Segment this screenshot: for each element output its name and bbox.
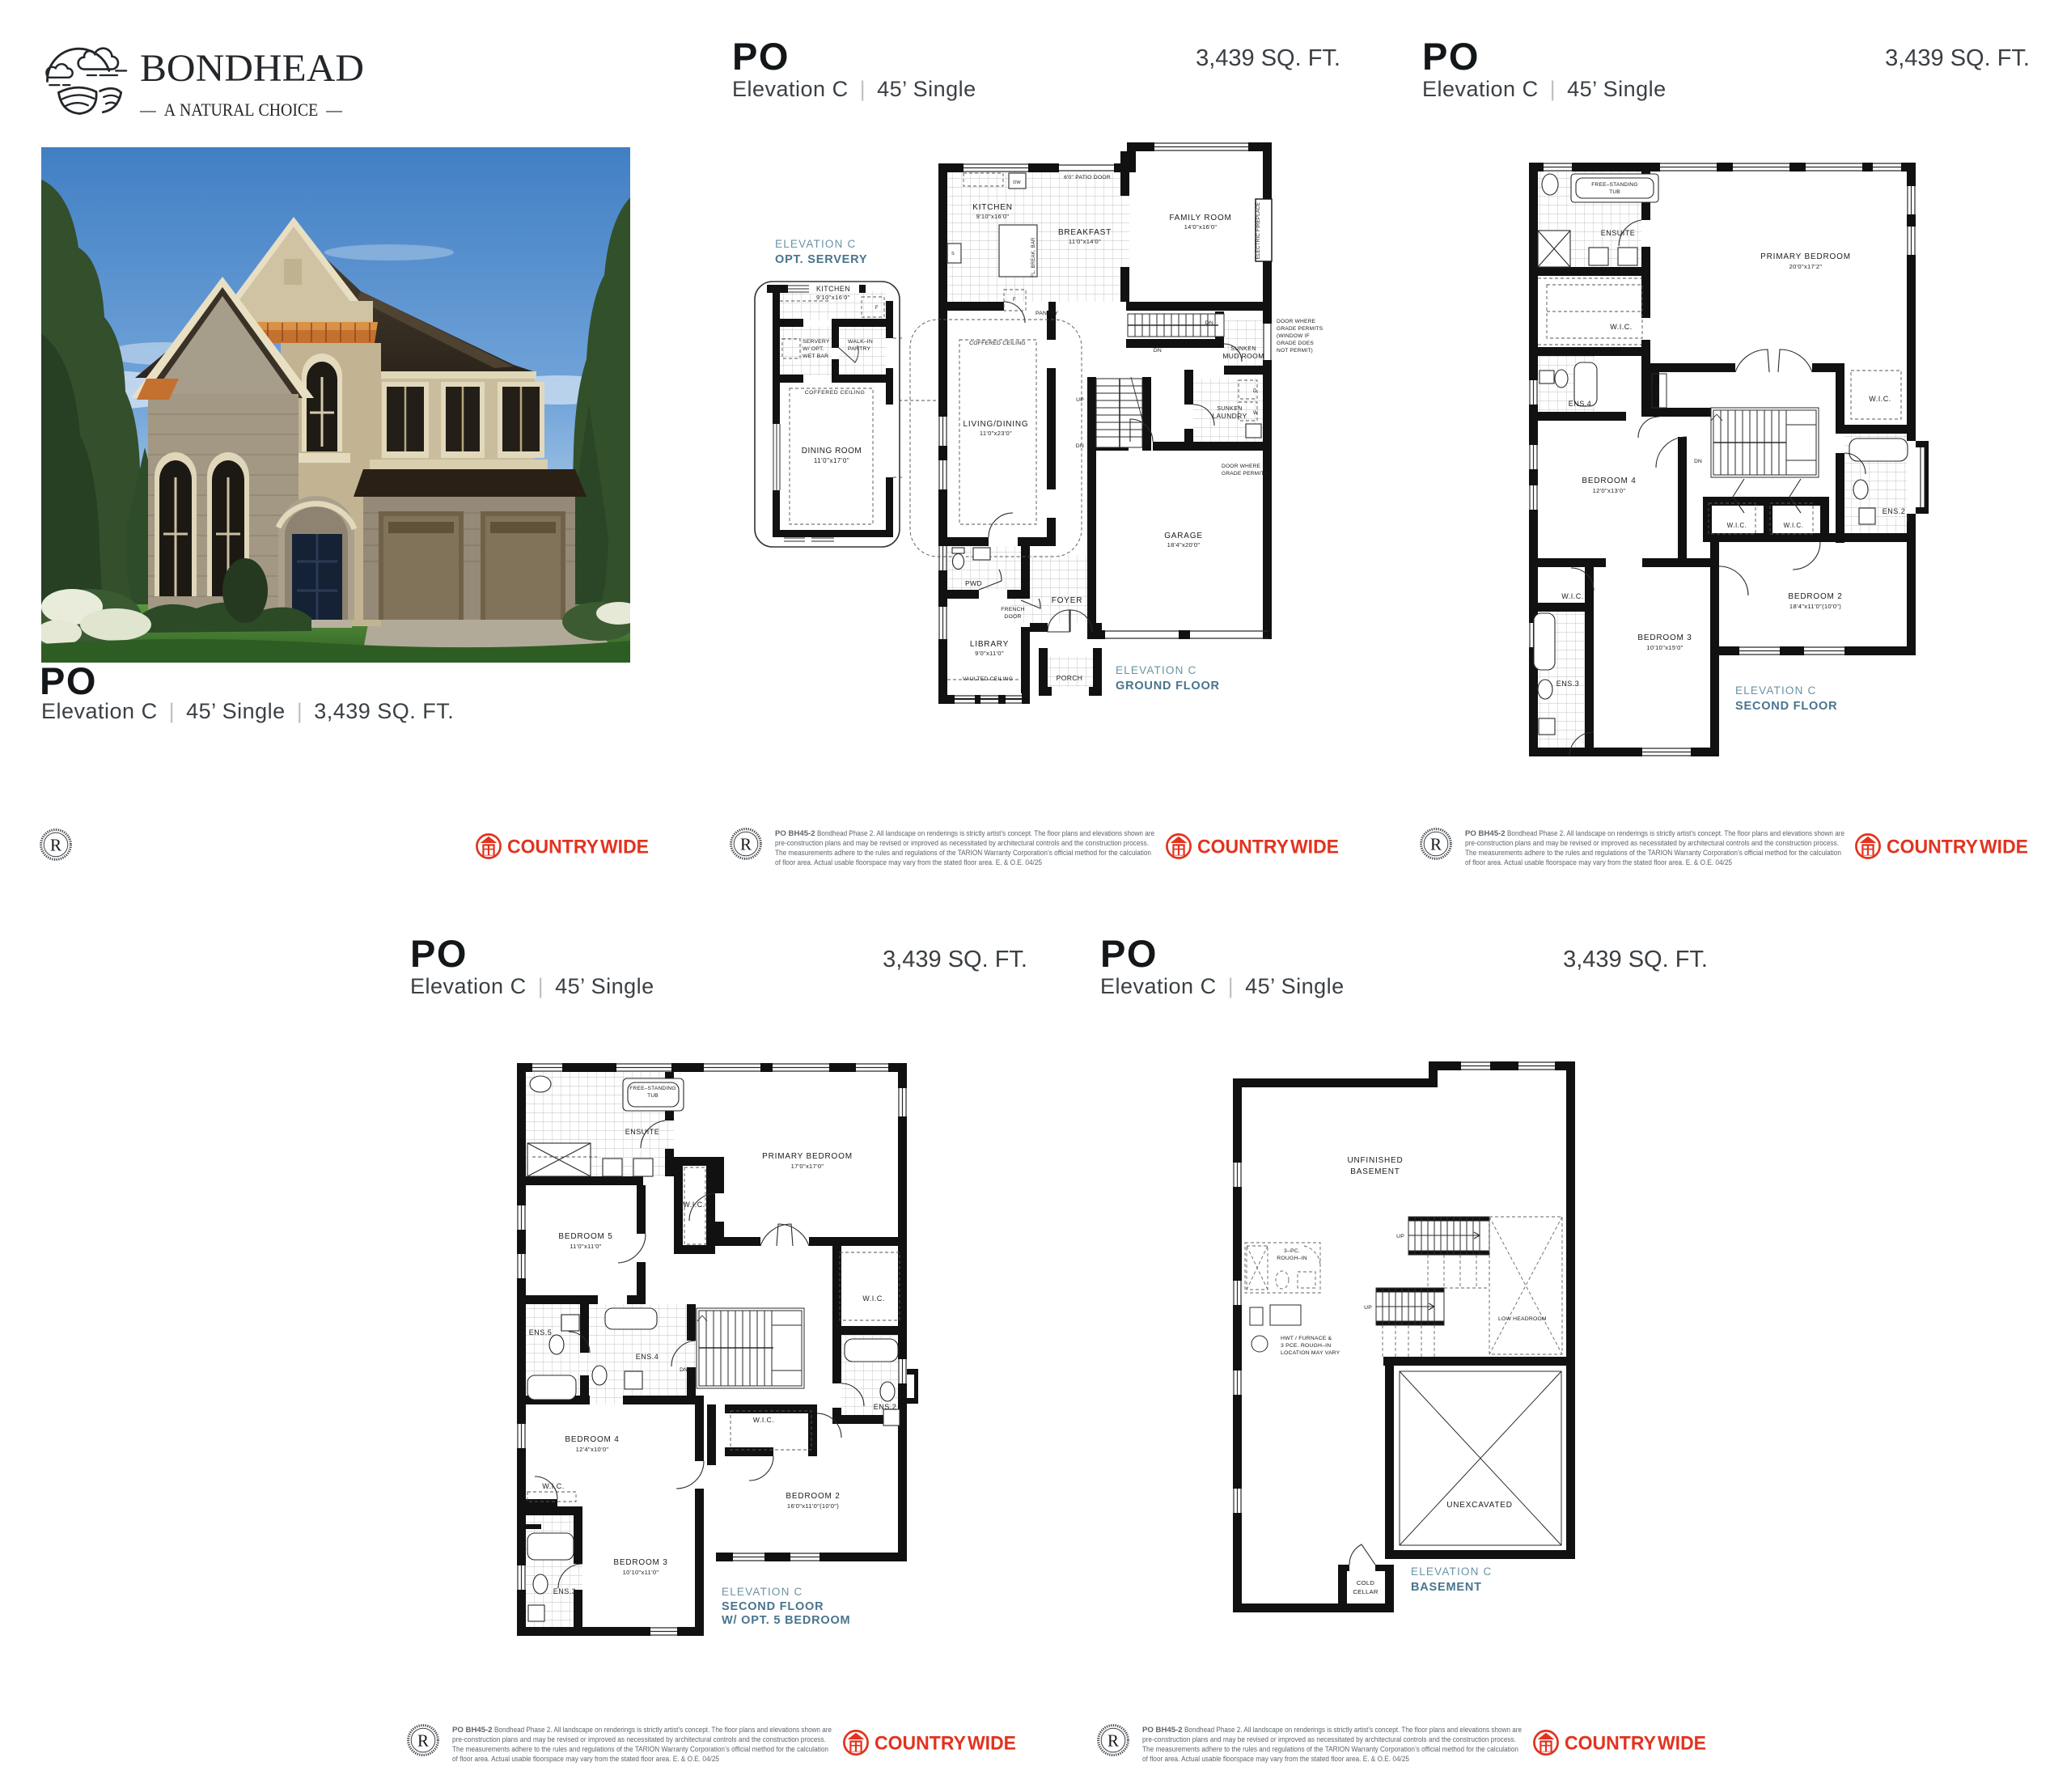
svg-text:GROUND FLOOR: GROUND FLOOR bbox=[1116, 680, 1220, 693]
svg-text:WIDE: WIDE bbox=[600, 837, 649, 858]
svg-text:10'10"x15'0": 10'10"x15'0" bbox=[1646, 644, 1683, 651]
svg-text:SUNKEN: SUNKEN bbox=[1217, 406, 1243, 412]
svg-text:GRADE PERMITS: GRADE PERMITS bbox=[1277, 326, 1323, 332]
svg-text:BEDROOM 5: BEDROOM 5 bbox=[558, 1232, 612, 1241]
svg-text:S: S bbox=[951, 252, 955, 256]
svg-text:9'10"x16'0": 9'10"x16'0" bbox=[816, 294, 850, 301]
svg-text:LIVING/DINING: LIVING/DINING bbox=[964, 420, 1029, 429]
svg-text:WIDE: WIDE bbox=[1658, 1733, 1706, 1755]
svg-text:TUB: TUB bbox=[1609, 189, 1620, 195]
svg-text:ELEVATION C: ELEVATION C bbox=[1411, 1565, 1492, 1578]
svg-text:W.I.C.: W.I.C. bbox=[1869, 395, 1891, 403]
svg-text:PRIMARY BEDROOM: PRIMARY BEDROOM bbox=[762, 1152, 853, 1161]
svg-text:ENS.3: ENS.3 bbox=[553, 1587, 577, 1595]
svg-text:PANTRY: PANTRY bbox=[848, 346, 870, 352]
svg-text:of floor area. Actual usable f: of floor area. Actual usable floorspace … bbox=[1465, 858, 1732, 867]
svg-text:D: D bbox=[1253, 389, 1257, 394]
svg-text:SERVERY: SERVERY bbox=[803, 339, 830, 345]
svg-text:DINING ROOM: DINING ROOM bbox=[802, 447, 862, 455]
svg-text:HWT / FURNACE &: HWT / FURNACE & bbox=[1281, 1336, 1332, 1341]
svg-text:FAMILY ROOM: FAMILY ROOM bbox=[1169, 214, 1231, 222]
svg-text:LOW HEADROOM: LOW HEADROOM bbox=[1498, 1316, 1547, 1322]
svg-text:W.I.C.: W.I.C. bbox=[1784, 522, 1804, 529]
svg-text:W.I.C.: W.I.C. bbox=[1561, 592, 1584, 600]
svg-text:W.I.C.: W.I.C. bbox=[683, 1201, 705, 1209]
svg-text:12'0"x13'0": 12'0"x13'0" bbox=[1593, 487, 1626, 494]
svg-text:ENS.2: ENS.2 bbox=[874, 1403, 897, 1411]
svg-text:20'0"x17'2": 20'0"x17'2" bbox=[1789, 263, 1823, 270]
svg-text:ELEVATION C: ELEVATION C bbox=[722, 1586, 803, 1598]
svg-text:11'0"x14'0": 11'0"x14'0" bbox=[1069, 238, 1101, 245]
svg-text:3–PC.: 3–PC. bbox=[1284, 1248, 1300, 1254]
svg-text:BEDROOM 2: BEDROOM 2 bbox=[786, 1492, 840, 1501]
svg-text:PO BH45-2: PO BH45-2 bbox=[1142, 1726, 1183, 1735]
svg-text:(WINDOW IF: (WINDOW IF bbox=[1277, 333, 1310, 339]
svg-text:BEDROOM 3: BEDROOM 3 bbox=[1637, 633, 1692, 642]
svg-text:WALK–IN: WALK–IN bbox=[848, 339, 873, 345]
svg-text:FL. BREAK. BAR: FL. BREAK. BAR bbox=[1031, 237, 1036, 277]
svg-text:3 PCE. ROUGH–IN: 3 PCE. ROUGH–IN bbox=[1281, 1343, 1331, 1349]
svg-text:BEDROOM 4: BEDROOM 4 bbox=[1582, 477, 1636, 485]
svg-text:COUNTRY: COUNTRY bbox=[1565, 1733, 1656, 1755]
svg-text:PWD: PWD bbox=[965, 579, 982, 587]
svg-text:COUNTRY: COUNTRY bbox=[507, 837, 599, 858]
svg-text:R: R bbox=[740, 835, 752, 854]
svg-text:ENSUITE: ENSUITE bbox=[1601, 229, 1636, 237]
svg-text:ELEVATION C: ELEVATION C bbox=[775, 238, 856, 250]
svg-text:W: W bbox=[1253, 411, 1258, 416]
svg-text:The measurements adhere to the: The measurements adhere to the rules and… bbox=[452, 1745, 828, 1754]
svg-text:DN: DN bbox=[1694, 459, 1702, 464]
svg-text:DN: DN bbox=[1076, 443, 1084, 449]
svg-text:DN: DN bbox=[1205, 320, 1213, 326]
svg-text:16'0"x11'0"(10'0"): 16'0"x11'0"(10'0") bbox=[787, 1502, 839, 1510]
svg-text:TUB: TUB bbox=[647, 1093, 659, 1099]
svg-text:FRENCH: FRENCH bbox=[1001, 607, 1025, 612]
svg-text:KITCHEN: KITCHEN bbox=[972, 203, 1013, 212]
svg-text:WET BAR: WET BAR bbox=[803, 354, 828, 359]
svg-text:PORCH: PORCH bbox=[1057, 674, 1083, 682]
svg-text:BONDHEAD: BONDHEAD bbox=[140, 47, 364, 90]
svg-text:W.I.C.: W.I.C. bbox=[1727, 522, 1747, 529]
svg-text:Bondhead Phase 2. All landscap: Bondhead Phase 2. All landscape on rende… bbox=[1184, 1726, 1522, 1735]
svg-text:SECOND FLOOR: SECOND FLOOR bbox=[1735, 700, 1837, 713]
svg-text:LOCATION MAY VARY: LOCATION MAY VARY bbox=[1281, 1350, 1340, 1356]
svg-text:pre-construction plans and may: pre-construction plans and may be revise… bbox=[452, 1735, 826, 1744]
svg-text:COFFERED CEILING: COFFERED CEILING bbox=[969, 341, 1026, 346]
svg-text:R: R bbox=[1107, 1731, 1119, 1751]
svg-text:LIBRARY: LIBRARY bbox=[970, 640, 1009, 649]
svg-text:GARAGE: GARAGE bbox=[1164, 532, 1203, 540]
svg-text:Bondhead Phase 2. All landscap: Bondhead Phase 2. All landscape on rende… bbox=[817, 829, 1154, 838]
svg-text:R: R bbox=[417, 1731, 429, 1751]
svg-text:ENS.4: ENS.4 bbox=[1569, 400, 1592, 408]
svg-text:The measurements adhere to the: The measurements adhere to the rules and… bbox=[775, 849, 1151, 858]
svg-text:VAULTED CEILING: VAULTED CEILING bbox=[963, 676, 1013, 682]
svg-text:COLD: COLD bbox=[1357, 1579, 1375, 1587]
svg-text:LINEN: LINEN bbox=[1656, 383, 1661, 398]
svg-text:PO BH45-2: PO BH45-2 bbox=[775, 829, 815, 838]
svg-text:14'0"x16'0": 14'0"x16'0" bbox=[1184, 223, 1218, 231]
svg-text:12'4"x10'0": 12'4"x10'0" bbox=[576, 1446, 609, 1453]
svg-text:10'10"x11'0": 10'10"x11'0" bbox=[623, 1569, 659, 1576]
svg-text:PO BH45-2: PO BH45-2 bbox=[1465, 829, 1506, 838]
svg-text:LINEN: LINEN bbox=[709, 1429, 714, 1443]
svg-text:UP: UP bbox=[1396, 1234, 1404, 1239]
svg-text:OPT. SERVERY: OPT. SERVERY bbox=[775, 253, 867, 266]
svg-text:17'0"x17'0": 17'0"x17'0" bbox=[791, 1163, 824, 1170]
svg-text:MUD ROOM: MUD ROOM bbox=[1222, 352, 1264, 360]
svg-text:ROUGH–IN: ROUGH–IN bbox=[1277, 1256, 1307, 1261]
svg-text:W/ OPT.: W/ OPT. bbox=[803, 346, 824, 352]
svg-text:GRADE PERMITS: GRADE PERMITS bbox=[1222, 471, 1268, 477]
svg-text:18'4"x20'0": 18'4"x20'0" bbox=[1167, 541, 1201, 549]
svg-text:COUNTRY: COUNTRY bbox=[875, 1733, 966, 1755]
svg-text:DN: DN bbox=[680, 1367, 688, 1373]
svg-text:ENS.4: ENS.4 bbox=[636, 1353, 659, 1361]
svg-text:pre-construction plans and may: pre-construction plans and may be revise… bbox=[1465, 839, 1839, 848]
svg-text:WIDE: WIDE bbox=[1980, 837, 2028, 858]
svg-text:PO BH45-2: PO BH45-2 bbox=[452, 1726, 493, 1735]
svg-text:UP: UP bbox=[1364, 1305, 1372, 1311]
svg-text:R: R bbox=[50, 836, 61, 855]
svg-text:ELEVATION C: ELEVATION C bbox=[1735, 684, 1816, 697]
svg-text:W.I.C.: W.I.C. bbox=[862, 1294, 885, 1303]
svg-text:COFFERED CEILING: COFFERED CEILING bbox=[805, 390, 865, 396]
svg-text:11'0"x17'0": 11'0"x17'0" bbox=[814, 457, 849, 464]
svg-text:ENS.3: ENS.3 bbox=[1556, 680, 1580, 688]
svg-text:11'0"x11'0": 11'0"x11'0" bbox=[570, 1243, 602, 1250]
svg-text:KITCHEN: KITCHEN bbox=[816, 285, 850, 293]
svg-text:W.I.C.: W.I.C. bbox=[753, 1416, 774, 1424]
svg-text:pre-construction plans and may: pre-construction plans and may be revise… bbox=[775, 839, 1149, 848]
svg-text:of floor area. Actual usable f: of floor area. Actual usable floorspace … bbox=[1142, 1755, 1409, 1764]
svg-text:DOOR: DOOR bbox=[1004, 614, 1021, 620]
svg-text:BASEMENT: BASEMENT bbox=[1350, 1167, 1400, 1176]
svg-text:BREAKFAST: BREAKFAST bbox=[1058, 228, 1112, 237]
svg-text:PANTRY: PANTRY bbox=[1035, 311, 1058, 316]
svg-text:of floor area. Actual usable f: of floor area. Actual usable floorspace … bbox=[452, 1755, 719, 1764]
svg-text:DOOR WHERE: DOOR WHERE bbox=[1222, 464, 1261, 469]
svg-text:BASEMENT: BASEMENT bbox=[1411, 1581, 1482, 1594]
svg-text:LAUNDRY: LAUNDRY bbox=[1212, 412, 1247, 420]
svg-text:9'0"x11'0": 9'0"x11'0" bbox=[975, 650, 1004, 657]
svg-text:11'0"x23'0": 11'0"x23'0" bbox=[980, 430, 1012, 437]
svg-text:UNFINISHED: UNFINISHED bbox=[1347, 1156, 1403, 1165]
svg-text:DOOR WHERE: DOOR WHERE bbox=[1277, 319, 1316, 324]
svg-text:UNEXCAVATED: UNEXCAVATED bbox=[1446, 1501, 1513, 1510]
svg-text:Bondhead Phase 2. All landscap: Bondhead Phase 2. All landscape on rende… bbox=[1507, 829, 1844, 838]
svg-text:9'10"x16'0": 9'10"x16'0" bbox=[976, 213, 1010, 220]
svg-text:SUNKEN: SUNKEN bbox=[1230, 346, 1256, 352]
svg-text:W/ OPT. 5 BEDROOM: W/ OPT. 5 BEDROOM bbox=[722, 1614, 850, 1627]
svg-text:FREE–STANDING: FREE–STANDING bbox=[629, 1086, 676, 1091]
svg-text:ELEVATION C: ELEVATION C bbox=[1116, 664, 1196, 676]
svg-text:Bondhead Phase 2. All landscap: Bondhead Phase 2. All landscape on rende… bbox=[494, 1726, 832, 1735]
svg-text:W.I.C.: W.I.C. bbox=[542, 1482, 565, 1490]
svg-text:WIDE: WIDE bbox=[1290, 837, 1339, 858]
svg-text:R: R bbox=[1430, 835, 1442, 854]
svg-text:DW: DW bbox=[1013, 180, 1021, 185]
svg-text:ENSUITE: ENSUITE bbox=[625, 1128, 660, 1136]
svg-text:BEDROOM 2: BEDROOM 2 bbox=[1788, 592, 1842, 601]
svg-text:W.I.C.: W.I.C. bbox=[1610, 323, 1633, 331]
svg-text:BEDROOM 4: BEDROOM 4 bbox=[565, 1435, 619, 1444]
svg-text:COUNTRY: COUNTRY bbox=[1887, 837, 1978, 858]
svg-text:CELLAR: CELLAR bbox=[1353, 1588, 1379, 1595]
svg-text:FOYER: FOYER bbox=[1052, 596, 1082, 605]
svg-text:6'0" PATIO DOOR: 6'0" PATIO DOOR bbox=[1064, 175, 1111, 180]
svg-text:SECOND FLOOR: SECOND FLOOR bbox=[722, 1600, 824, 1613]
svg-text:of floor area. Actual usable f: of floor area. Actual usable floorspace … bbox=[775, 858, 1042, 867]
svg-text:pre-construction plans and may: pre-construction plans and may be revise… bbox=[1142, 1735, 1516, 1744]
svg-text:ENS.2: ENS.2 bbox=[1883, 507, 1906, 515]
svg-text:F: F bbox=[1013, 298, 1016, 303]
svg-text:UP: UP bbox=[1076, 397, 1084, 403]
svg-text:GRADE DOES: GRADE DOES bbox=[1277, 341, 1314, 346]
svg-text:PRIMARY BEDROOM: PRIMARY BEDROOM bbox=[1760, 252, 1851, 261]
svg-text:The measurements adhere to the: The measurements adhere to the rules and… bbox=[1465, 849, 1841, 858]
svg-text:ELECTRIC FIREPLACE: ELECTRIC FIREPLACE bbox=[1256, 202, 1261, 259]
svg-text:18'4"x11'0"(10'0"): 18'4"x11'0"(10'0") bbox=[1789, 603, 1841, 610]
svg-text:— A NATURAL CHOICE —: — A NATURAL CHOICE — bbox=[139, 100, 343, 120]
svg-text:F: F bbox=[875, 306, 879, 311]
svg-text:FREE–STANDING: FREE–STANDING bbox=[1591, 182, 1637, 188]
svg-text:ENS.5: ENS.5 bbox=[529, 1328, 553, 1337]
svg-text:WIDE: WIDE bbox=[968, 1733, 1016, 1755]
svg-text:NOT PERMIT): NOT PERMIT) bbox=[1277, 348, 1313, 354]
svg-text:DN: DN bbox=[1154, 348, 1162, 354]
svg-text:COUNTRY: COUNTRY bbox=[1197, 837, 1289, 858]
svg-text:The measurements adhere to the: The measurements adhere to the rules and… bbox=[1142, 1745, 1518, 1754]
svg-text:BEDROOM 3: BEDROOM 3 bbox=[613, 1558, 667, 1567]
